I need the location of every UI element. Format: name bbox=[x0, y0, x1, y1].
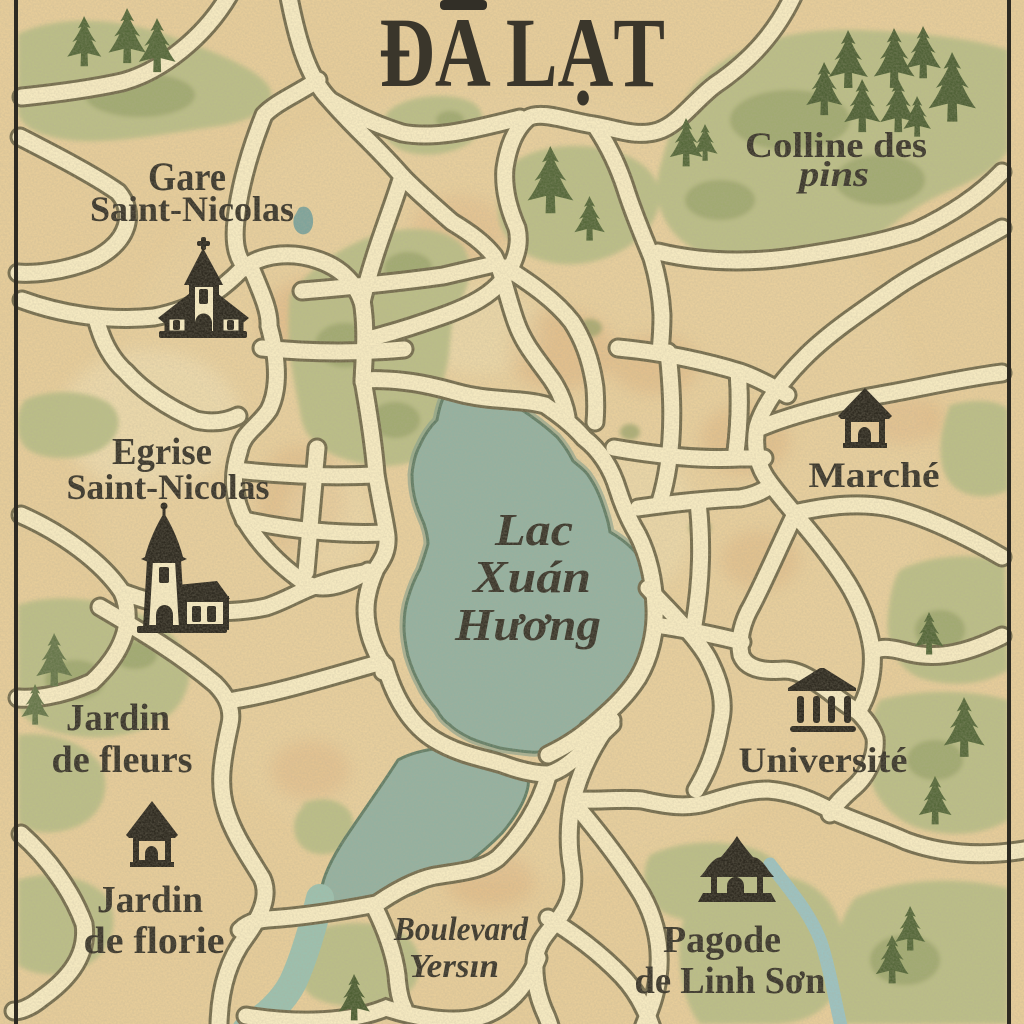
svg-text:ĐA LẠT: ĐA LẠT bbox=[379, 0, 665, 108]
